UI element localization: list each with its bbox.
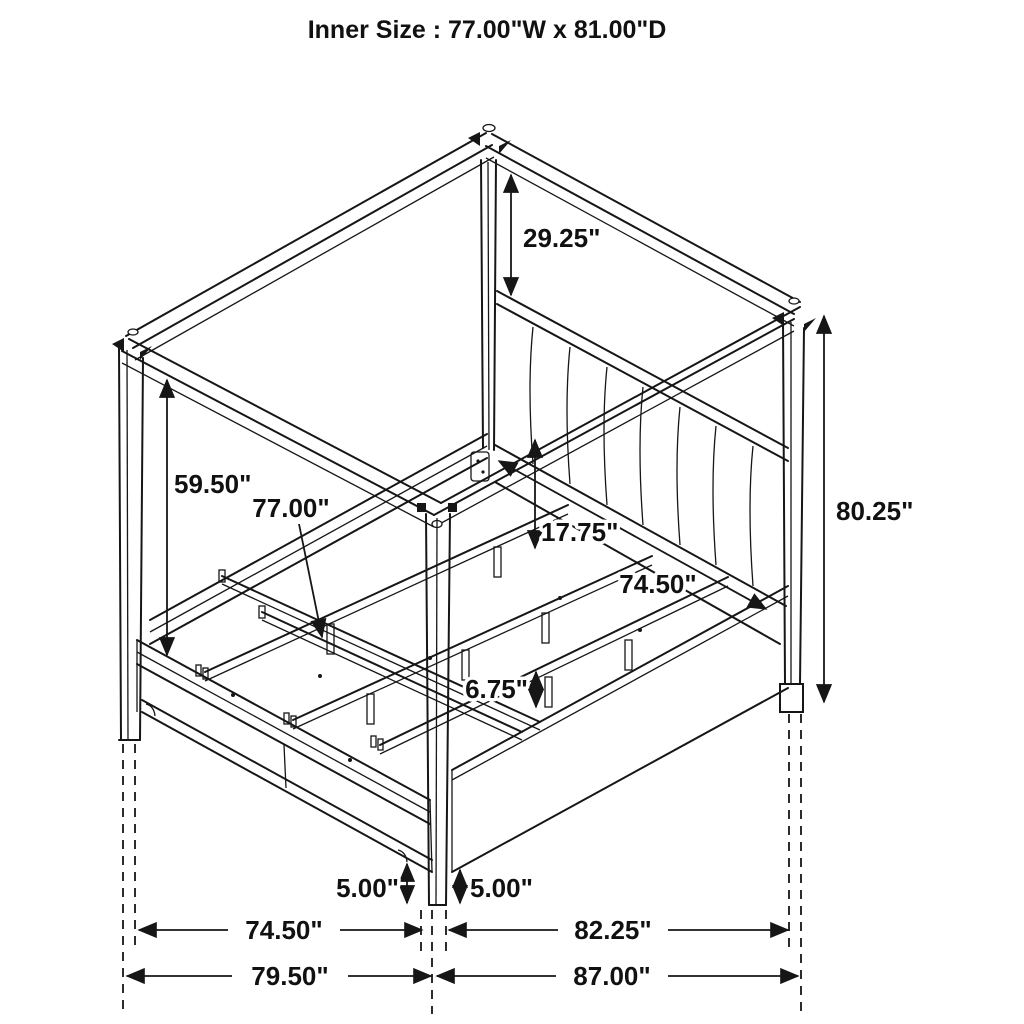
drawer-divider: [284, 745, 286, 788]
head-right-post: [780, 320, 804, 712]
diagram-page: Inner Size : 77.00"W x 81.00"D: [0, 0, 1024, 1024]
dim-overall-depth-bottom: 87.00": [573, 961, 650, 991]
dim-overall-width-bottom: 79.50": [251, 961, 328, 991]
left-post: [119, 348, 143, 740]
footboard-drawers: [137, 640, 432, 872]
head-left-post: [471, 160, 496, 481]
extension-lines: [123, 714, 801, 1014]
dim-inner-width-bottom: 74.50": [245, 915, 322, 945]
canopy-frame: [112, 125, 816, 528]
front-post: [426, 514, 450, 905]
dim-foot-clearance-right: 5.00": [470, 873, 533, 903]
dim-canopy-drop: 29.25": [523, 223, 600, 253]
dim-post-opening-height: 59.50": [174, 469, 251, 499]
dim-inner-depth-bottom: 82.25": [574, 915, 651, 945]
dim-slat-width: 77.00": [252, 493, 329, 523]
dim-headboard-panel-height: 17.75": [541, 517, 618, 547]
dim-slat-leg-height: 6.75": [465, 674, 528, 704]
page-title: Inner Size : 77.00"W x 81.00"D: [308, 16, 667, 44]
dimension-labels: 29.25" 59.50" 77.00" 17.75" 74.50" 80.25…: [174, 223, 913, 991]
rail-bracket-plate: [471, 452, 489, 481]
dim-overall-height: 80.25": [836, 496, 913, 526]
bed-dimension-drawing: Inner Size : 77.00"W x 81.00"D: [0, 0, 1024, 1024]
dim-foot-clearance-left: 5.00": [336, 873, 399, 903]
dim-headboard-inner-width: 74.50": [619, 569, 696, 599]
canopy-corner-brackets: [112, 125, 816, 528]
